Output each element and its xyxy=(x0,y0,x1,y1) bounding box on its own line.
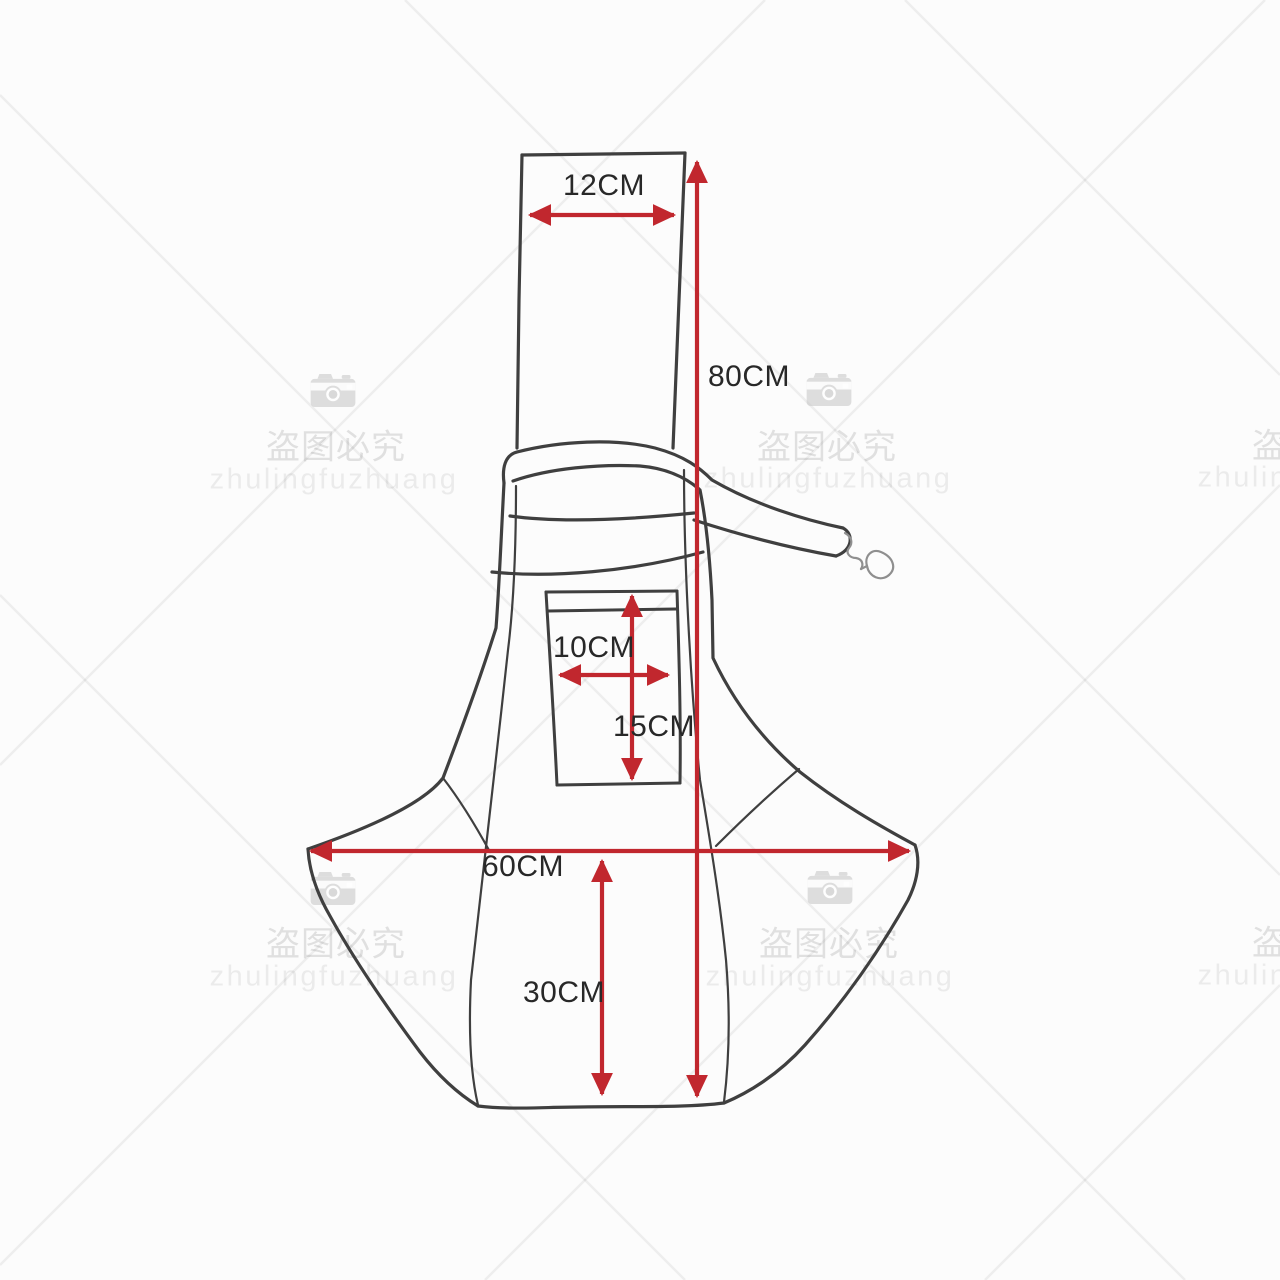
body-seams xyxy=(443,470,799,1105)
dim-label-top-strap-width: 12CM xyxy=(563,169,645,203)
pocket-outline xyxy=(546,591,680,785)
dim-label-pocket-height: 15CM xyxy=(613,710,695,744)
dim-label-total-height: 80CM xyxy=(708,360,790,394)
dimension-arrows xyxy=(311,162,909,1096)
dim-label-bottom-width: 60CM xyxy=(482,850,564,884)
collar-band xyxy=(503,442,850,556)
dim-label-pocket-width: 10CM xyxy=(553,631,635,665)
body-outline xyxy=(308,483,918,1108)
diagram-canvas: 盗图必究 盗图必究 盗图必究 盗图必究 盗图必究 盗图必究 zhulingfuz… xyxy=(0,0,1280,1280)
strap-clip-hook xyxy=(845,533,893,578)
dim-label-bottom-depth: 30CM xyxy=(523,976,605,1010)
